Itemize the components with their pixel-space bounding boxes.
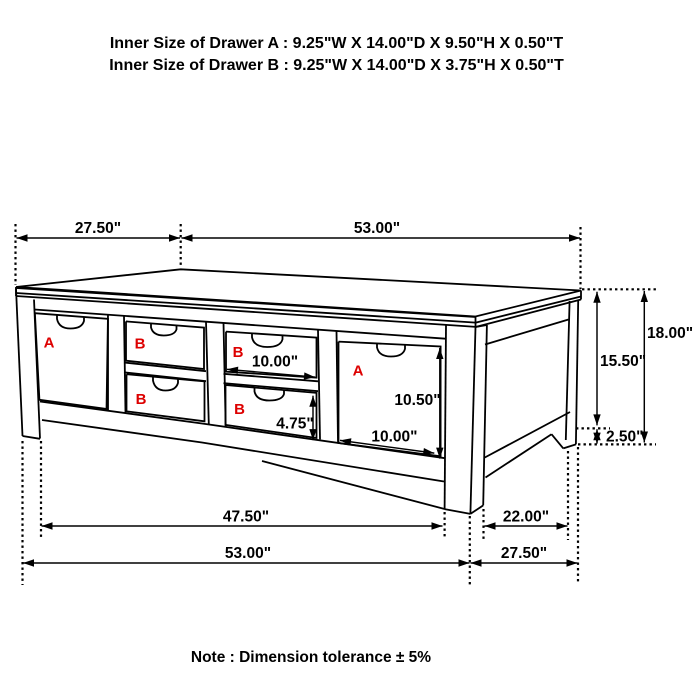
svg-text:15.50": 15.50" bbox=[600, 353, 646, 370]
svg-text:B: B bbox=[136, 391, 147, 408]
svg-text:10.50": 10.50" bbox=[394, 392, 440, 409]
svg-text:B: B bbox=[135, 335, 146, 352]
svg-text:Inner Size of Drawer B : 9.25": Inner Size of Drawer B : 9.25"W X 14.00"… bbox=[109, 57, 564, 74]
svg-text:4.75": 4.75" bbox=[276, 416, 314, 433]
svg-text:B: B bbox=[234, 401, 245, 418]
svg-text:Inner Size of Drawer A : 9.25": Inner Size of Drawer A : 9.25"W X 14.00"… bbox=[110, 35, 564, 52]
svg-text:53.00": 53.00" bbox=[225, 545, 271, 562]
svg-text:27.50": 27.50" bbox=[75, 220, 121, 237]
svg-text:18.00": 18.00" bbox=[647, 325, 693, 342]
svg-text:2.50": 2.50" bbox=[606, 429, 644, 446]
svg-text:27.50": 27.50" bbox=[501, 545, 547, 562]
svg-text:10.00": 10.00" bbox=[252, 354, 298, 371]
svg-text:B: B bbox=[233, 344, 244, 361]
svg-text:10.00": 10.00" bbox=[371, 429, 417, 446]
svg-text:53.00": 53.00" bbox=[354, 220, 400, 237]
svg-text:22.00": 22.00" bbox=[503, 509, 549, 526]
svg-text:47.50": 47.50" bbox=[223, 509, 269, 526]
svg-text:A: A bbox=[44, 335, 55, 352]
svg-text:Note : Dimension tolerance ± 5: Note : Dimension tolerance ± 5% bbox=[191, 649, 431, 666]
svg-text:A: A bbox=[353, 363, 364, 380]
